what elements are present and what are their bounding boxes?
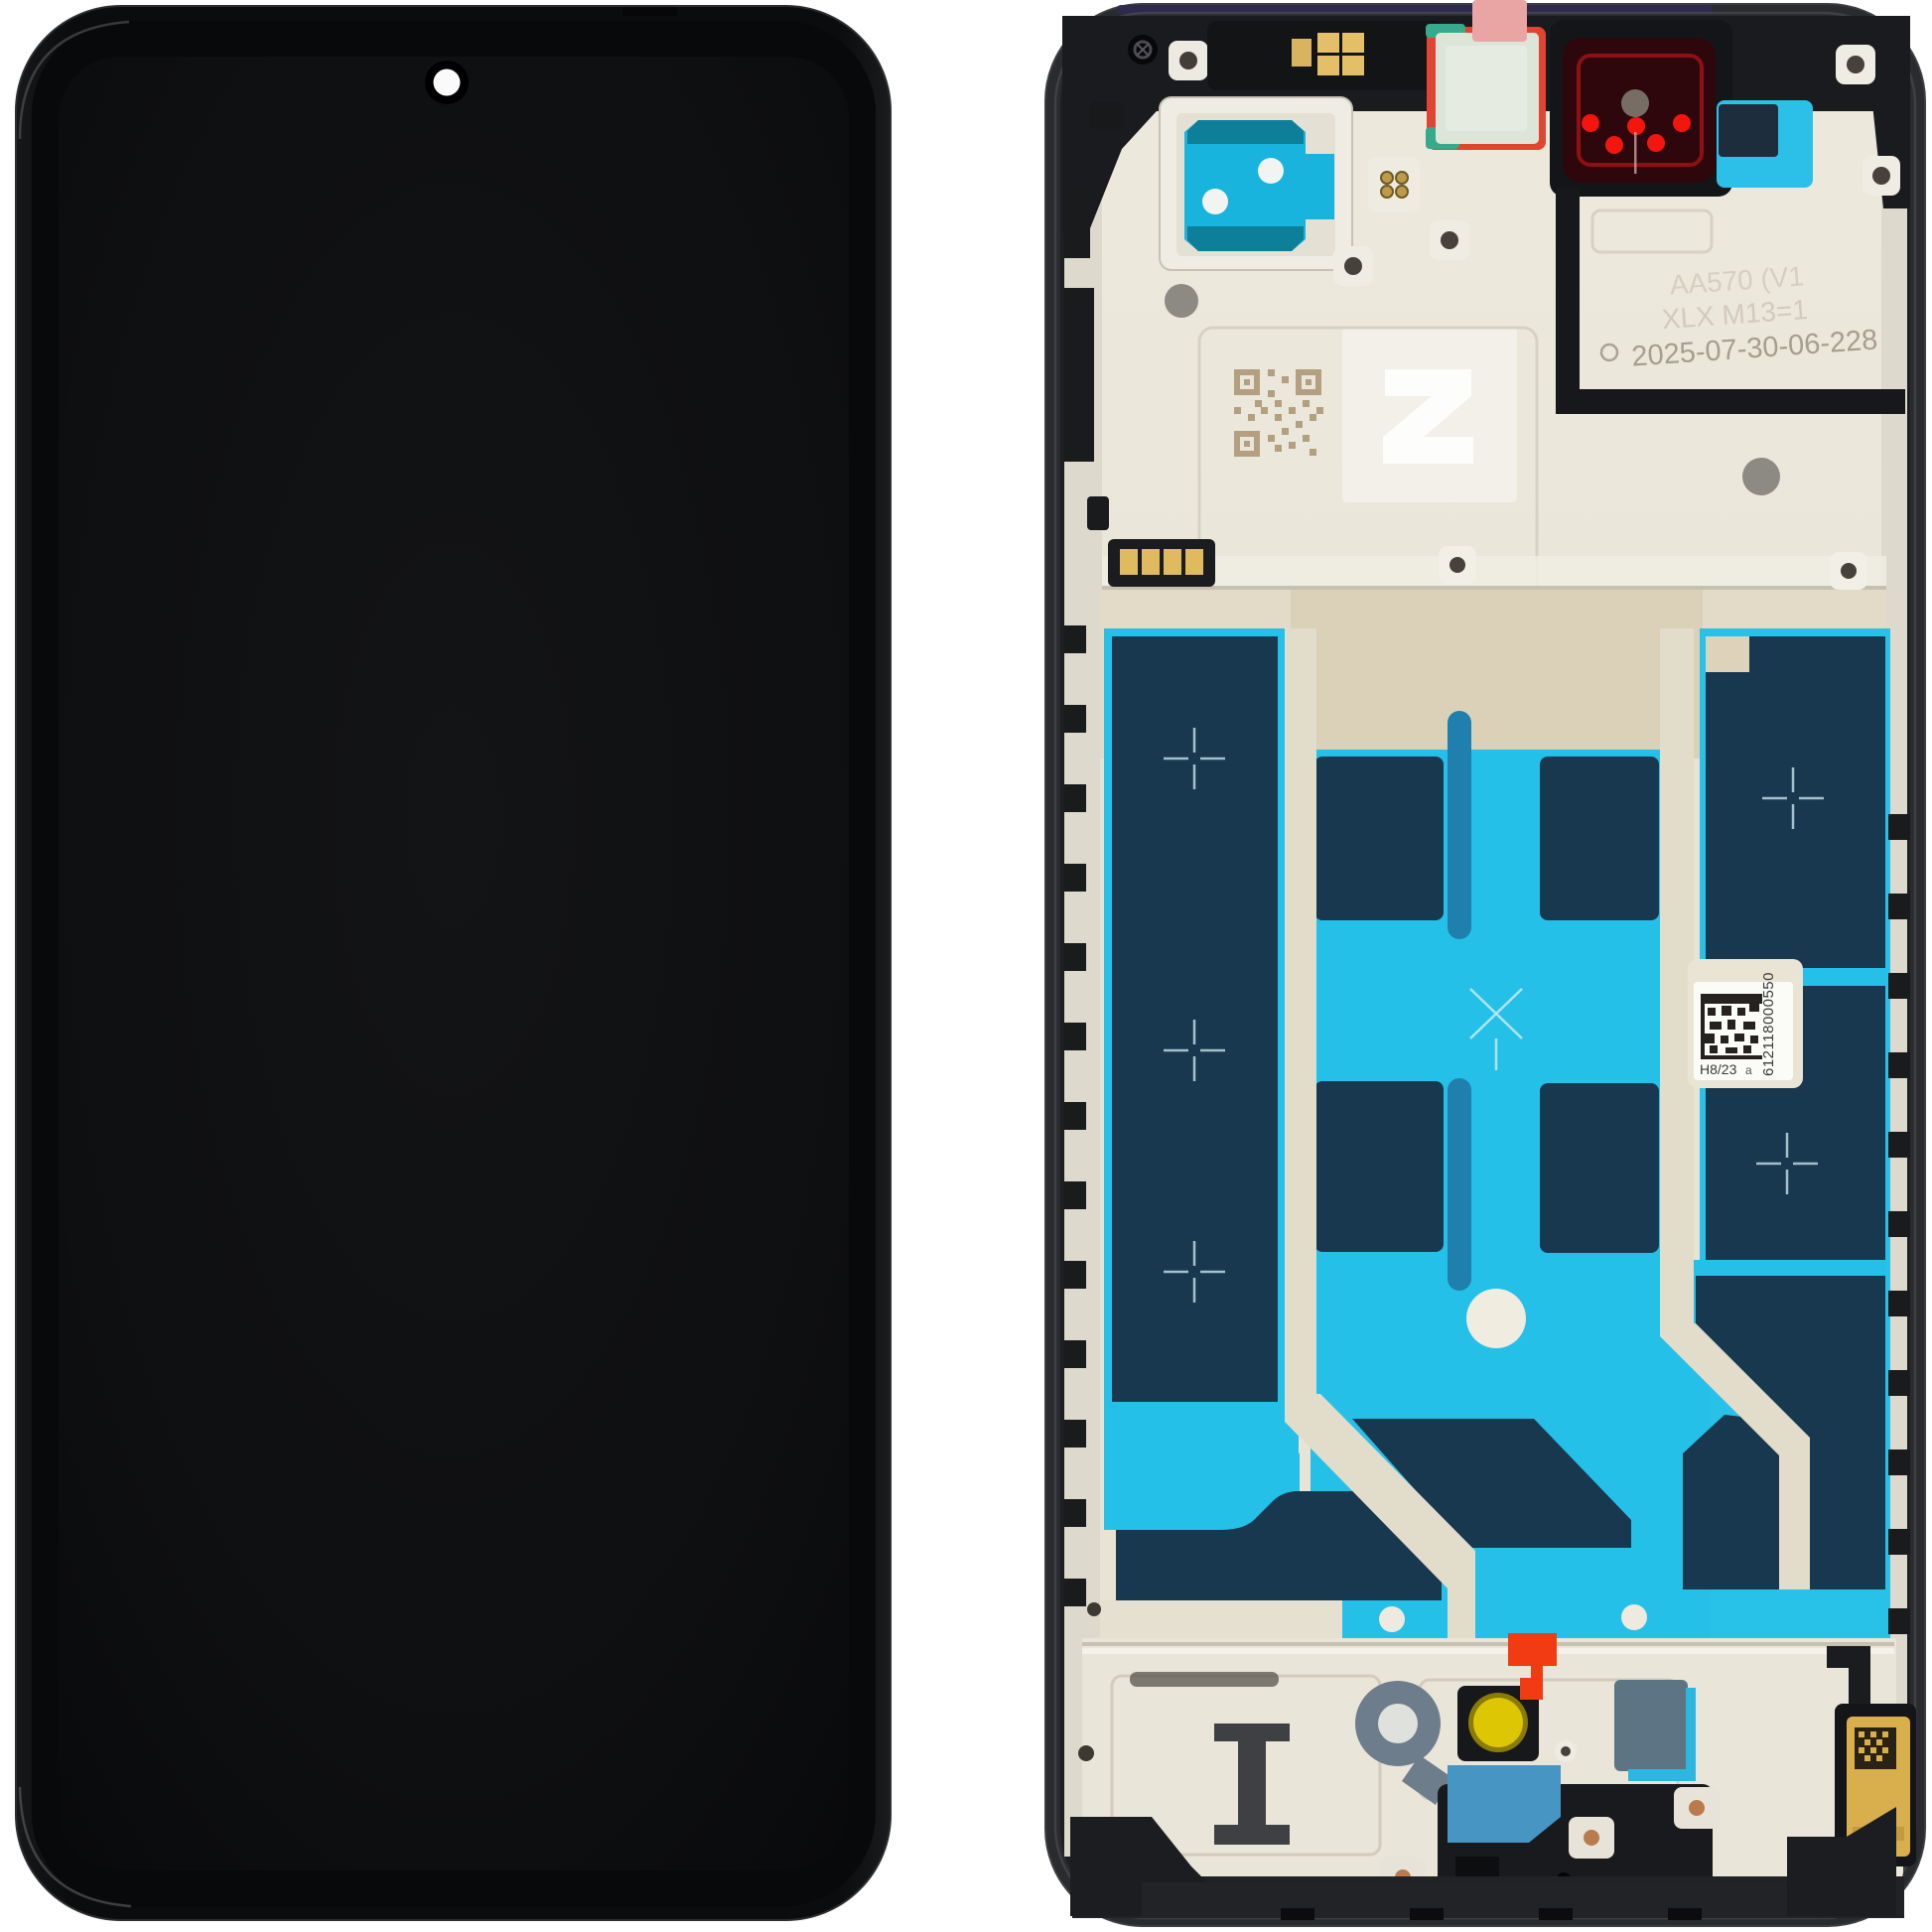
svg-text:612118000550: 612118000550 xyxy=(1760,972,1777,1076)
svg-text:H8/23: H8/23 xyxy=(1700,1061,1737,1077)
svg-text:a: a xyxy=(1745,1063,1752,1077)
